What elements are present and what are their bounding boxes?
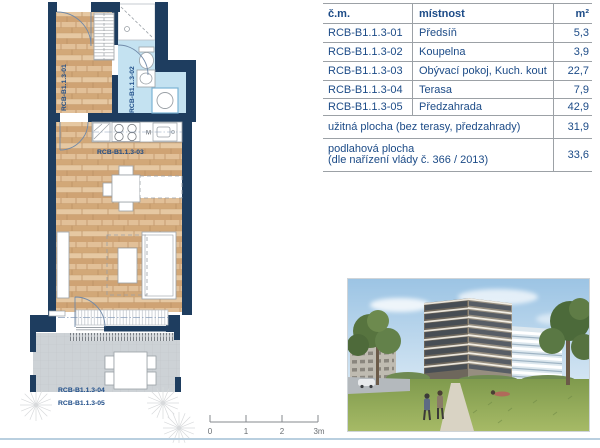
garden-planting-marks [20, 387, 195, 443]
summary-row-floor-area: podlahová plocha (dle nařízení vlády č. … [323, 139, 592, 172]
building-photo [347, 278, 590, 432]
cell-room: Terasa [412, 81, 553, 98]
cell-room: Koupelna [412, 43, 553, 61]
bottom-rule [0, 438, 600, 440]
wardrobe [57, 232, 69, 298]
summary-label: podlahová plocha (dle nařízení vlády č. … [323, 144, 553, 167]
terrace-drain-strip [70, 333, 173, 341]
cell-code: RCB-B1.1.3-04 [323, 84, 412, 96]
summary-value: 33,6 [553, 139, 592, 171]
room-label-living: RCB-B1.1.3-03 [97, 149, 144, 156]
dining-table [112, 175, 140, 202]
cell-room: Obývací pokoj, Kuch. kout [412, 62, 553, 80]
chair [119, 166, 133, 175]
chair [147, 356, 156, 369]
cell-code: RCB-B1.1.3-03 [323, 65, 412, 77]
header-area: m² [553, 4, 592, 23]
table-row: RCB-B1.1.3-04 Terasa 7,9 [323, 81, 592, 99]
cell-code: RCB-B1.1.3-02 [323, 46, 412, 58]
shower-fixture [118, 4, 155, 40]
floor-plan: M RCB-B1.1.3-01 RCB-B [0, 0, 300, 443]
scale-tick-1: 1 [244, 427, 249, 436]
scale-tick-3: 3m [313, 427, 324, 436]
table-row: RCB-B1.1.3-05 Předzahrada 42,9 [323, 99, 592, 116]
cell-area: 7,9 [553, 81, 592, 98]
table-row: RCB-B1.1.3-03 Obývací pokoj, Kuch. kout … [323, 62, 592, 81]
cell-room: Předzahrada [412, 99, 553, 115]
table-header-row: č.m. místnost m² [323, 4, 592, 24]
chair [147, 372, 156, 385]
washing-machine-fixture [152, 88, 178, 113]
table-row: RCB-B1.1.3-02 Koupelna 3,9 [323, 43, 592, 62]
room-label-hall: RCB-B1.1.3-01 [61, 64, 68, 111]
cell-area: 3,9 [553, 43, 592, 61]
main-building [424, 298, 512, 383]
hall-wardrobe [94, 13, 114, 60]
chair [105, 372, 114, 385]
scale-tick-2: 2 [280, 427, 285, 436]
floor-plan-svg: M RCB-B1.1.3-01 RCB-B [0, 0, 300, 443]
cell-room: Předsíň [412, 24, 553, 42]
summary-row-useful-area: užitná plocha (bez terasy, předzahrady) … [323, 116, 592, 139]
room-label-terrace: RCB-B1.1.3-04 [58, 387, 105, 394]
summary-label: užitná plocha (bez terasy, předzahrady) [323, 121, 553, 133]
room-label-garden: RCB-B1.1.3-05 [58, 400, 105, 407]
window-sill [49, 311, 65, 316]
header-code: č.m. [323, 8, 412, 20]
bath-sink-fixture [137, 70, 155, 87]
chair [105, 356, 114, 369]
cell-code: RCB-B1.1.3-05 [323, 101, 412, 113]
terrace-table [114, 352, 147, 389]
header-room: místnost [412, 4, 553, 23]
table-row: RCB-B1.1.3-01 Předsíň 5,3 [323, 24, 592, 43]
scale-bar: 0 1 2 3m [198, 407, 332, 437]
chair [119, 202, 133, 211]
fold-out-bed-outline [140, 176, 182, 198]
coffee-table [118, 248, 137, 283]
cell-code: RCB-B1.1.3-01 [323, 27, 412, 39]
chair [103, 183, 112, 196]
cell-area: 22,7 [553, 62, 592, 80]
kitchen-counter: M [92, 122, 182, 142]
cell-area: 42,9 [553, 99, 592, 115]
area-table: č.m. místnost m² RCB-B1.1.3-01 Předsíň 5… [323, 3, 592, 172]
room-label-bath: RCB-B1.1.3-02 [129, 66, 136, 113]
microwave-label: M [146, 131, 151, 137]
cell-area: 5,3 [553, 24, 592, 42]
scale-tick-0: 0 [208, 427, 213, 436]
summary-value: 31,9 [553, 116, 592, 138]
